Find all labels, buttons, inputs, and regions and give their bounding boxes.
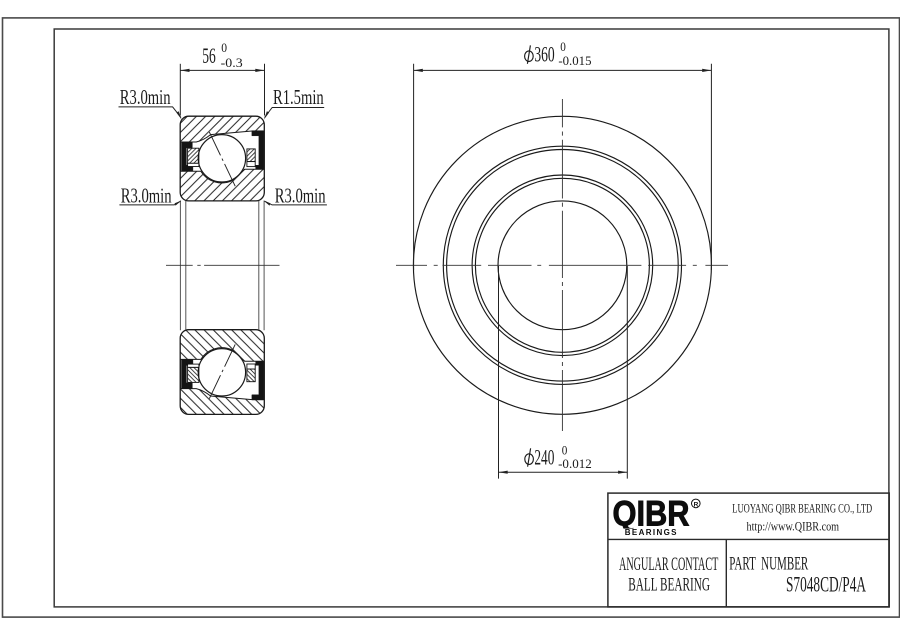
svg-text:PART NUMBER: PART NUMBER <box>729 553 808 574</box>
svg-text:http://www.QIBR.com: http://www.QIBR.com <box>747 519 840 534</box>
svg-text:BEARINGS: BEARINGS <box>625 528 677 537</box>
svg-text:-0.015: -0.015 <box>558 54 591 68</box>
svg-text:LUOYANG QIBR BEARING CO., LTD: LUOYANG QIBR BEARING CO., LTD <box>732 501 872 516</box>
svg-text:BALL BEARING: BALL BEARING <box>628 575 710 596</box>
svg-text:R3.0min: R3.0min <box>275 183 326 207</box>
svg-text:R: R <box>694 501 699 508</box>
svg-text:-0.3: -0.3 <box>221 55 243 70</box>
svg-text:-0.012: -0.012 <box>558 457 592 471</box>
svg-text:0: 0 <box>560 40 566 54</box>
svg-text:ANGULAR CONTACT: ANGULAR CONTACT <box>619 554 718 575</box>
svg-text:R3.0min: R3.0min <box>121 183 172 207</box>
svg-text:360: 360 <box>534 42 554 67</box>
svg-text:0: 0 <box>221 40 227 55</box>
svg-text:0: 0 <box>562 444 568 458</box>
svg-text:R3.0min: R3.0min <box>120 85 171 109</box>
svg-text:56: 56 <box>202 43 216 68</box>
svg-text:240: 240 <box>534 445 554 470</box>
svg-text:R1.5min: R1.5min <box>273 85 324 109</box>
svg-text:S7048CD/P4A: S7048CD/P4A <box>786 573 866 597</box>
